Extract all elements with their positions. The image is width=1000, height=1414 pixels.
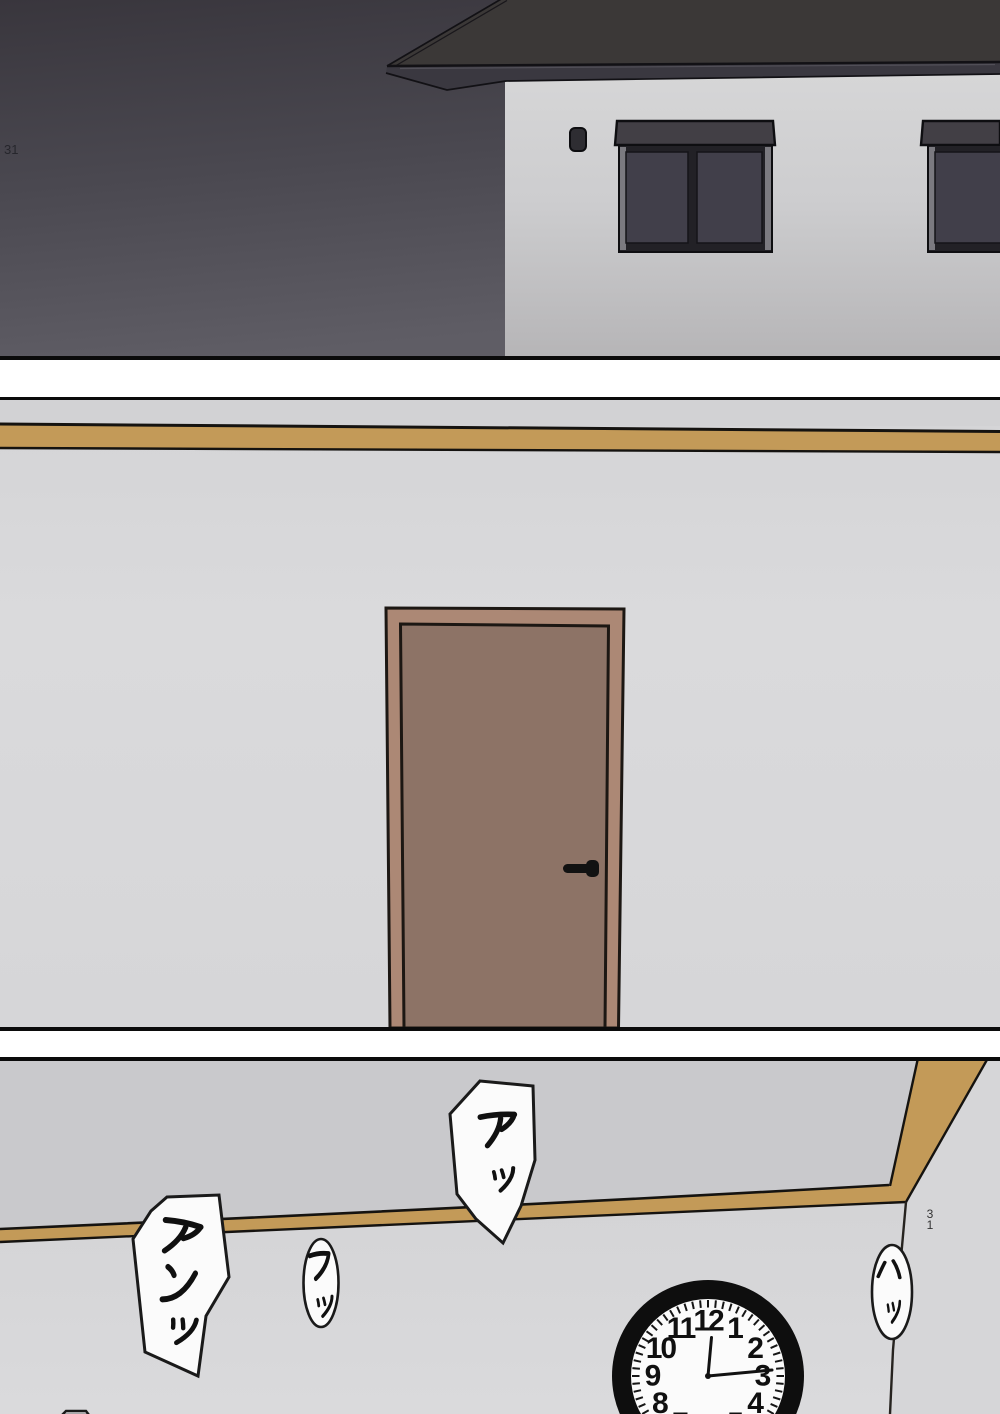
svg-text:1: 1 xyxy=(927,1218,934,1232)
svg-text:7: 7 xyxy=(672,1407,689,1414)
svg-text:31: 31 xyxy=(4,142,18,157)
svg-text:4: 4 xyxy=(747,1387,764,1414)
svg-text:1: 1 xyxy=(727,1312,744,1345)
svg-text:11: 11 xyxy=(667,1312,696,1345)
svg-text:5: 5 xyxy=(727,1407,744,1414)
svg-text:12: 12 xyxy=(693,1305,724,1338)
